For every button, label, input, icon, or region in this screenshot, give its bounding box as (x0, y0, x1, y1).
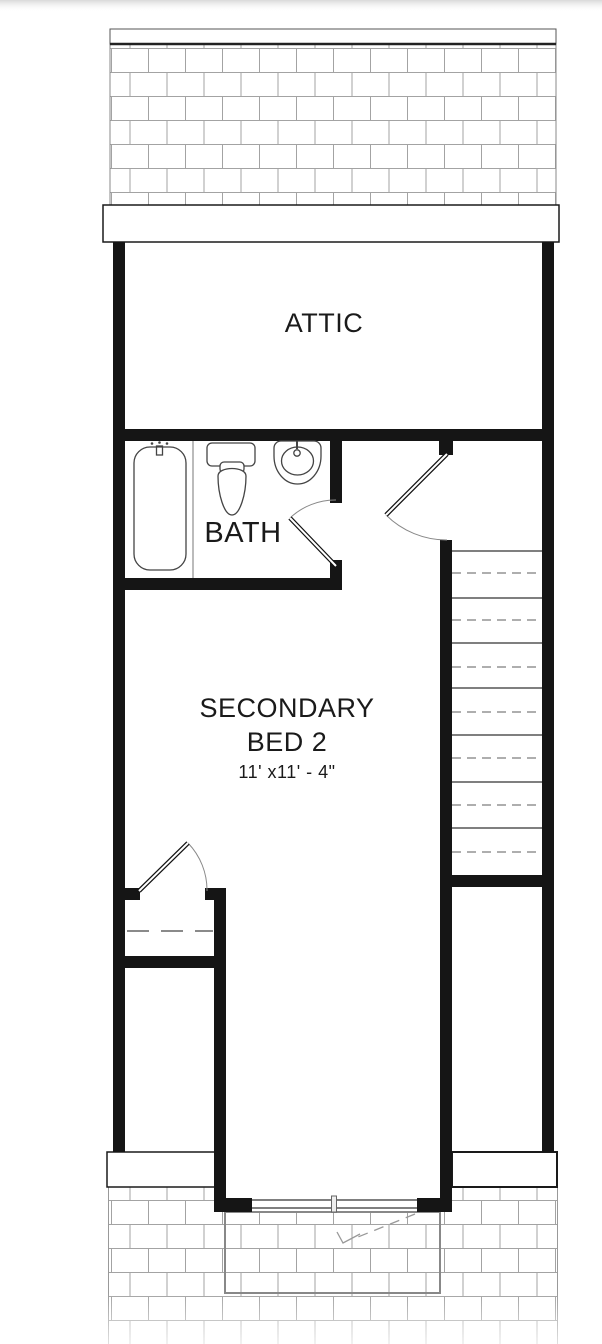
bed2-room-label-line1: SECONDARY (199, 693, 374, 723)
bedroom-door-post (439, 439, 453, 455)
attic-room-label: ATTIC (285, 308, 364, 338)
stair-bottom-wall (440, 875, 554, 887)
bed2-dimensions: 11' x11' - 4" (238, 762, 335, 782)
closet-bottom-wall (113, 956, 226, 968)
structural-band-bottom-right (452, 1152, 557, 1187)
toilet-icon (207, 443, 255, 515)
bed2-room-label-line2: BED 2 (247, 727, 328, 757)
stairs (452, 551, 542, 852)
bath-bottom-wall (113, 578, 342, 590)
bath-door (290, 500, 336, 566)
floor-plan-page: ATTIC BATH SECONDARY BED 2 11' x11' - 4" (0, 0, 602, 1344)
sink-icon (274, 441, 321, 484)
bottom-fade (100, 1293, 570, 1344)
exterior-wall-right (542, 242, 554, 1152)
bedroom-door (386, 454, 447, 540)
bath-door-wall (330, 441, 342, 503)
coping-band (110, 29, 556, 44)
structural-band-bottom-left (107, 1152, 217, 1187)
bath-room-label: BATH (204, 517, 281, 549)
exterior-wall-left (113, 242, 125, 1152)
brick-wall-top (110, 29, 556, 205)
slider-post-right (417, 1198, 452, 1212)
bathtub-icon (134, 441, 193, 578)
floor-plan-drawing: ATTIC BATH SECONDARY BED 2 11' x11' - 4" (0, 0, 602, 1344)
page-top-shadow (0, 0, 602, 12)
interior-wall-left (214, 888, 226, 1212)
closet-wall-stub-left (113, 888, 140, 900)
closet-door (139, 843, 207, 891)
attic-bottom-wall (113, 429, 554, 441)
walls (113, 242, 554, 1212)
structural-band-top (103, 205, 559, 242)
slider-post-left (214, 1198, 252, 1212)
